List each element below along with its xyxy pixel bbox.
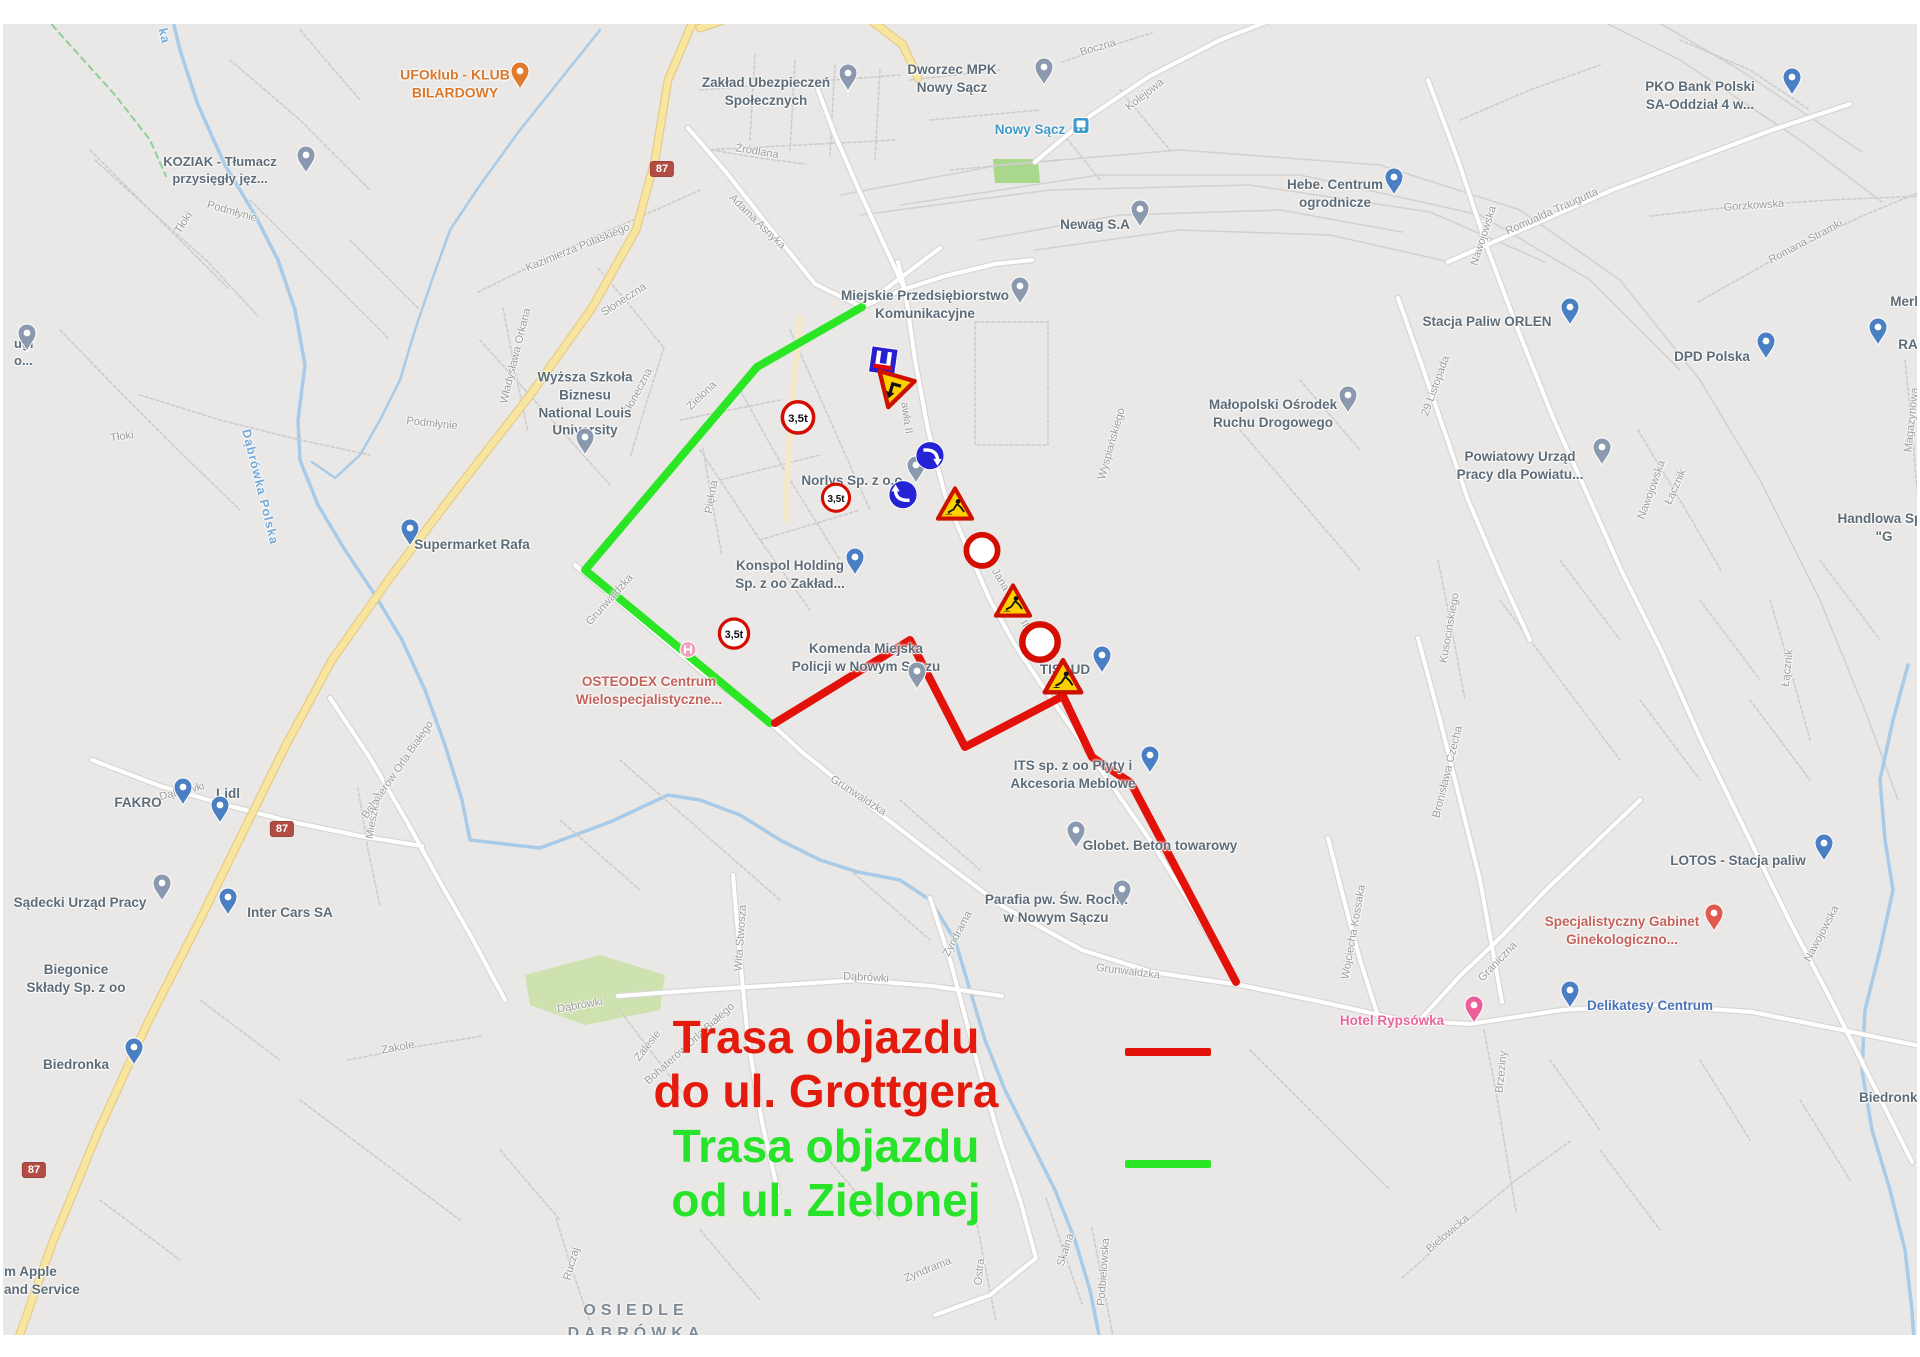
poi-pin-delikatesy[interactable] <box>1559 980 1581 1015</box>
pin-icon <box>1091 645 1113 675</box>
sign-weight-limit-sign-2: 3,5t <box>818 480 854 521</box>
pin-icon <box>1463 995 1485 1025</box>
sign-roadworks-sign-1 <box>935 485 975 530</box>
pin-icon <box>1781 67 1803 97</box>
district-label-osiedle-dabrowka: OSIEDLEDĄBRÓWKA <box>568 1299 705 1335</box>
pin-icon <box>1111 879 1133 909</box>
poi-pin-pko-bank[interactable] <box>1781 67 1803 102</box>
road-bielowicka <box>1402 1140 1572 1278</box>
poi-pin-globet[interactable] <box>1065 820 1087 855</box>
poi-label-konspol: Konspol HoldingSp. z oo Zakład... <box>735 557 845 593</box>
pin-icon <box>1139 745 1161 775</box>
map-viewport[interactable]: KolejowaBocznaAdama AsnykaŹródlanaKazimi… <box>3 24 1917 1335</box>
svg-text:3,5t: 3,5t <box>788 413 808 425</box>
hospital-icon-osteodex[interactable] <box>680 641 697 663</box>
poi-pin-malopolski-osrodek[interactable] <box>1337 385 1359 420</box>
sign-no-entry-sign-2 <box>1016 618 1063 671</box>
poi-label-merkury: Merk <box>1890 293 1917 311</box>
road-m23 <box>620 760 780 900</box>
poi-pin-ufoklub[interactable] <box>509 61 531 96</box>
svg-text:3,5t: 3,5t <box>827 494 845 505</box>
road-m39 <box>1560 560 1620 640</box>
road-m31 <box>1800 1100 1850 1180</box>
pin-icon <box>1813 833 1835 863</box>
poi-label-dpd: DPD Polska <box>1674 348 1750 366</box>
road-m25 <box>850 870 930 940</box>
poi-label-specjalistyczny: Specjalistyczny GabinetGinekologiczno... <box>1545 913 1700 949</box>
road-m13 <box>300 30 360 100</box>
poi-pin-stacja-orlen[interactable] <box>1559 297 1581 332</box>
poi-pin-zus[interactable] <box>837 63 859 98</box>
poi-label-hotel-rypsowka: Hotel Rypsówka <box>1340 1012 1444 1030</box>
poi-label-mpk: Miejskie PrzedsiębiorstwoKomunikacyjne <box>841 287 1009 323</box>
poi-label-stacja-orlen: Stacja Paliw ORLEN <box>1422 313 1551 331</box>
poi-label-hebe: Hebe. Centrumogrodnicze <box>1287 176 1383 212</box>
road-casing-jana-pawla-ii <box>898 262 1237 984</box>
road-mpk-loop <box>975 322 1048 445</box>
poi-pin-komenda-policji[interactable] <box>906 661 928 696</box>
road-m40 <box>1700 600 1760 680</box>
pin-icon <box>123 1037 145 1067</box>
pin-icon <box>217 887 239 917</box>
sign-turn-right-sign <box>911 437 948 479</box>
poi-label-supermarket-rafa: Supermarket Rafa <box>414 536 530 554</box>
poi-pin-powiatowy-urzad[interactable] <box>1591 437 1613 472</box>
poi-pin-lotos[interactable] <box>1813 833 1835 868</box>
poi-label-biegonice: BiegoniceSkłady Sp. z oo <box>26 961 125 997</box>
pin-icon <box>399 518 421 548</box>
road-m42 <box>1750 700 1810 780</box>
pin-icon <box>295 145 317 175</box>
poi-label-biedronka-right: Biedronka <box>1859 1089 1917 1107</box>
pin-icon <box>906 661 928 691</box>
poi-label-biedronka-left: Biedronka <box>43 1056 109 1074</box>
poi-pin-supermarket-rafa[interactable] <box>399 518 421 553</box>
road-m43 <box>1820 560 1880 640</box>
pin-icon <box>1559 297 1581 327</box>
road-zakole <box>348 1036 482 1060</box>
road-m6 <box>705 140 895 150</box>
poi-label-apple-service: m Appleand Service <box>4 1263 80 1299</box>
road-m24 <box>560 820 640 890</box>
pin-icon <box>16 323 38 353</box>
road-m34 <box>200 1000 280 1060</box>
road-m8 <box>930 110 1040 120</box>
poi-pin-biedronka-left[interactable] <box>123 1037 145 1072</box>
poi-label-ra-poi: RA <box>1898 336 1917 354</box>
sign-weight-limit-sign-3: 3,5t <box>715 614 754 658</box>
road-dk87-east <box>700 24 918 78</box>
sign-turn-left-sign <box>884 476 921 518</box>
pin-icon <box>1033 57 1055 87</box>
poi-pin-parafia[interactable] <box>1111 879 1133 914</box>
pin-icon <box>1755 331 1777 361</box>
poi-label-malopolski-osrodek: Małopolski OśrodekRuchu Drogowego <box>1209 396 1337 432</box>
pin-icon <box>151 873 173 903</box>
road-m30 <box>1600 1150 1660 1230</box>
map-screenshot: KolejowaBocznaAdama AsnykaŹródlanaKazimi… <box>0 0 1920 1357</box>
poi-label-globet: Globet. Beton towarowy <box>1083 837 1238 855</box>
legend-green-swatch <box>1125 1160 1211 1168</box>
pin-icon <box>1383 167 1405 197</box>
road-m16 <box>350 240 420 310</box>
road-casing-grunwaldzka <box>575 565 1917 1046</box>
pin-icon <box>574 427 596 457</box>
green-dashed-boundary <box>30 24 166 176</box>
poi-label-handlowa: Handlowa Spó"G <box>1837 510 1917 546</box>
pin-icon <box>844 547 866 577</box>
road-m29 <box>1700 1060 1750 1140</box>
poi-label-nowy-sacz-station: Nowy Sącz <box>995 121 1066 139</box>
pin-icon <box>1065 820 1087 850</box>
poi-label-its: ITS sp. z oo Płyty iAkcesoria Meblowe <box>1010 757 1135 793</box>
poi-label-newag: Newag S.A <box>1060 216 1130 234</box>
poi-pin-dpd[interactable] <box>1755 331 1777 366</box>
road-m3 <box>830 65 835 155</box>
railway-2 <box>860 185 1545 262</box>
road-m28 <box>1550 1060 1600 1130</box>
poi-pin-specjalistyczny[interactable] <box>1703 903 1725 938</box>
road-m36 <box>700 1230 760 1300</box>
area-park-patch <box>525 955 665 1025</box>
poi-label-powiatowy-urzad: Powiatowy UrządPracy dla Powiatu... <box>1457 448 1584 484</box>
road-m35 <box>100 1200 180 1260</box>
poi-label-osteodex: OSTEODEX CentrumWielospecjalistyczne... <box>576 673 722 709</box>
road-tloki-2 <box>60 330 240 510</box>
poi-label-ufoklub: UFOklub - KLUBBILARDOWY <box>400 66 510 103</box>
poi-pin-mpk[interactable] <box>1009 276 1031 311</box>
poi-label-lotos: LOTOS - Stacja paliw <box>1670 852 1806 870</box>
poi-pin-dworzec-mpk[interactable] <box>1033 57 1055 92</box>
road-m44 <box>1240 430 1360 570</box>
legend: Trasa objazdu do ul. Grottgera Trasa obj… <box>654 1010 999 1227</box>
road-m38 <box>1500 600 1620 760</box>
poi-pin-ra-poi[interactable] <box>1867 317 1889 352</box>
map-world: KolejowaBocznaAdama AsnykaŹródlanaKazimi… <box>3 24 1917 1335</box>
legend-red-swatch <box>1125 1048 1211 1056</box>
road-dabrowki-center <box>618 980 1002 996</box>
pin-icon <box>172 777 194 807</box>
pin-icon <box>209 795 231 825</box>
poi-label-koziak: KOZIAK - Tłumaczprzysięgły jęz... <box>163 153 276 187</box>
pin-icon <box>837 63 859 93</box>
poi-label-delikatesy: Delikatesy Centrum <box>1587 997 1713 1015</box>
poi-pin-inter-cars[interactable] <box>217 887 239 922</box>
poi-label-parafia: Parafia pw. Św. Rochaw Nowym Sączu <box>985 891 1127 927</box>
poi-pin-uslugi[interactable] <box>16 323 38 358</box>
poi-label-fakro: FAKRO <box>114 794 161 812</box>
poi-pin-sadecki-urzad[interactable] <box>151 873 173 908</box>
road-shield-87-1: 87 <box>270 821 294 837</box>
road-m32 <box>300 1100 460 1220</box>
road-shield-87-2: 87 <box>22 1162 46 1178</box>
poi-pin-koziak[interactable] <box>295 145 317 180</box>
poi-pin-fakro[interactable] <box>172 777 194 812</box>
poi-pin-its[interactable] <box>1139 745 1161 780</box>
railway-6 <box>1035 230 1450 262</box>
road-m27 <box>1250 1050 1390 1190</box>
railway-0 <box>840 150 1898 800</box>
sign-weight-limit-sign-1: 3,5t <box>777 397 819 444</box>
pin-icon <box>1129 199 1151 229</box>
route-red <box>775 640 1236 982</box>
road-m4 <box>875 70 880 160</box>
pin-icon <box>1337 385 1359 415</box>
poi-pin-tisbud[interactable] <box>1091 645 1113 680</box>
poi-label-inter-cars: Inter Cars SA <box>247 904 333 922</box>
road-label-ostra: Ostra <box>971 1258 988 1286</box>
river-river-right <box>1862 665 1915 1335</box>
road-label-d-br-wki: Dąbrówki <box>843 970 890 987</box>
station-icon-nowy-sacz-station[interactable] <box>1073 117 1090 139</box>
poi-label-dworzec-mpk: Dworzec MPKNowy Sącz <box>907 61 996 97</box>
legend-green-line-1: Trasa objazdu <box>654 1119 999 1173</box>
legend-green-line-2: od ul. Zielonej <box>654 1173 999 1227</box>
pin-icon <box>509 61 531 91</box>
road-m47 <box>1460 65 1600 120</box>
poi-pin-hebe[interactable] <box>1383 167 1405 202</box>
svg-text:3,5t: 3,5t <box>725 629 744 641</box>
pin-icon <box>1867 317 1889 347</box>
road-grunwaldzka <box>575 565 1917 1046</box>
road-m15 <box>250 200 390 340</box>
legend-red-line-1: Trasa objazdu <box>654 1010 999 1064</box>
pin-icon <box>1591 437 1613 467</box>
sign-no-entry-sign-1 <box>961 530 1003 577</box>
poi-pin-hotel-rypsowka[interactable] <box>1463 995 1485 1030</box>
road-jana-pawla-ii <box>898 262 1237 984</box>
road-shield-87-0: 87 <box>650 161 674 177</box>
railway-3 <box>980 210 1402 240</box>
poi-pin-wyzsza-szkola[interactable] <box>574 427 596 462</box>
poi-label-zus: Zakład UbezpieczeńSpołecznych <box>702 74 830 110</box>
pin-icon <box>1009 276 1031 306</box>
road-m33 <box>500 1150 560 1220</box>
poi-pin-newag[interactable] <box>1129 199 1151 234</box>
poi-pin-lidl[interactable] <box>209 795 231 830</box>
pin-icon <box>1703 903 1725 933</box>
poi-label-pko-bank: PKO Bank PolskiSA-Oddział 4 w... <box>1645 78 1755 114</box>
poi-pin-konspol[interactable] <box>844 547 866 582</box>
pin-icon <box>1559 980 1581 1010</box>
poi-label-sadecki-urzad: Sądecki Urząd Pracy <box>14 894 147 912</box>
legend-red-line-2: do ul. Grottgera <box>654 1064 999 1118</box>
